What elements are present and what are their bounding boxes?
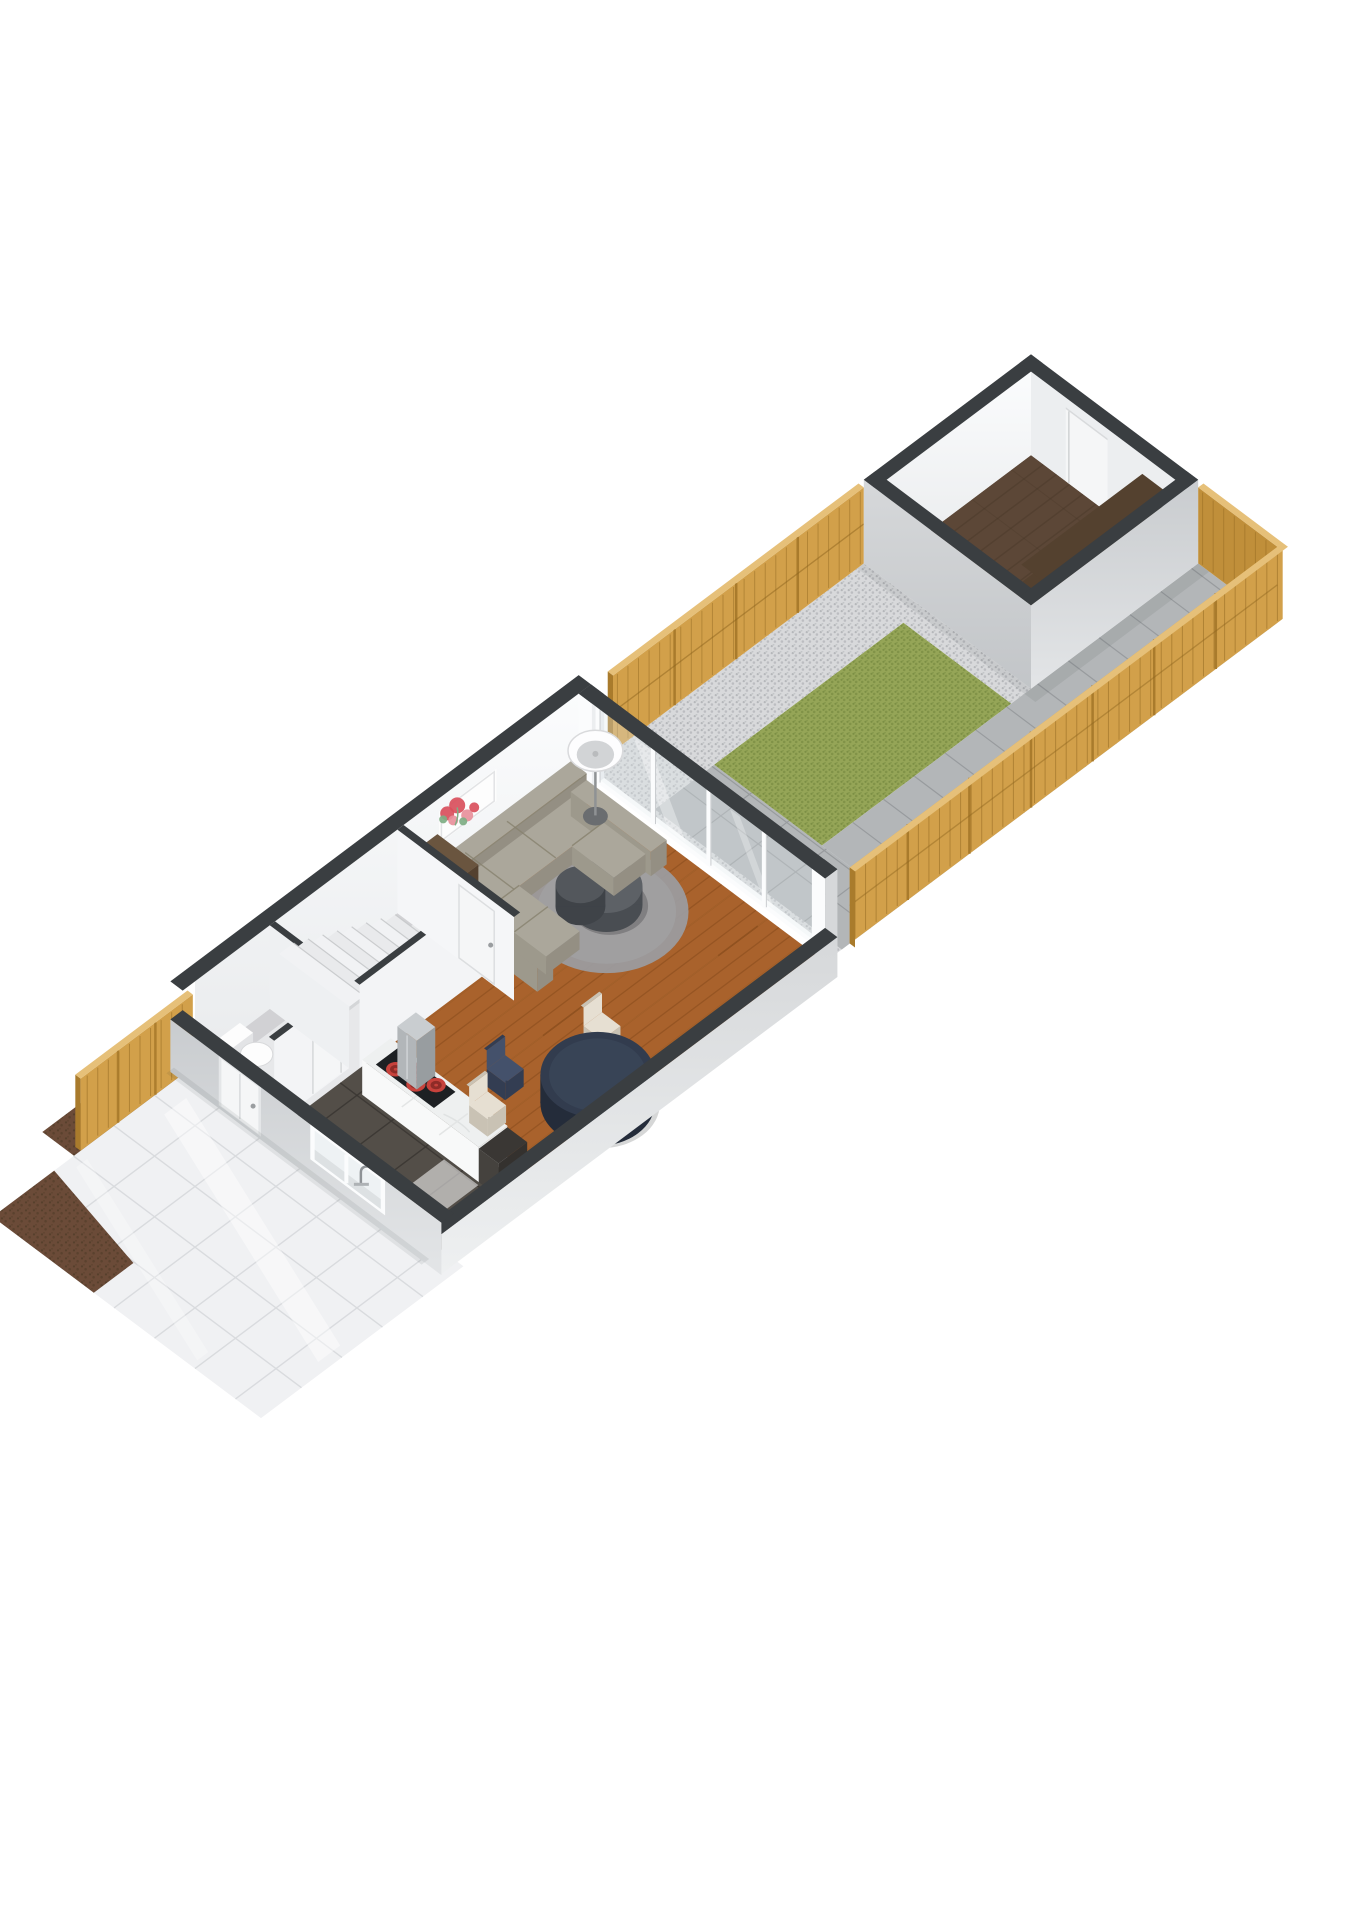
floorplan-3d-render [0, 0, 1358, 1920]
extractor-hood [397, 1012, 435, 1089]
floorplan-scene [0, 0, 1358, 1920]
